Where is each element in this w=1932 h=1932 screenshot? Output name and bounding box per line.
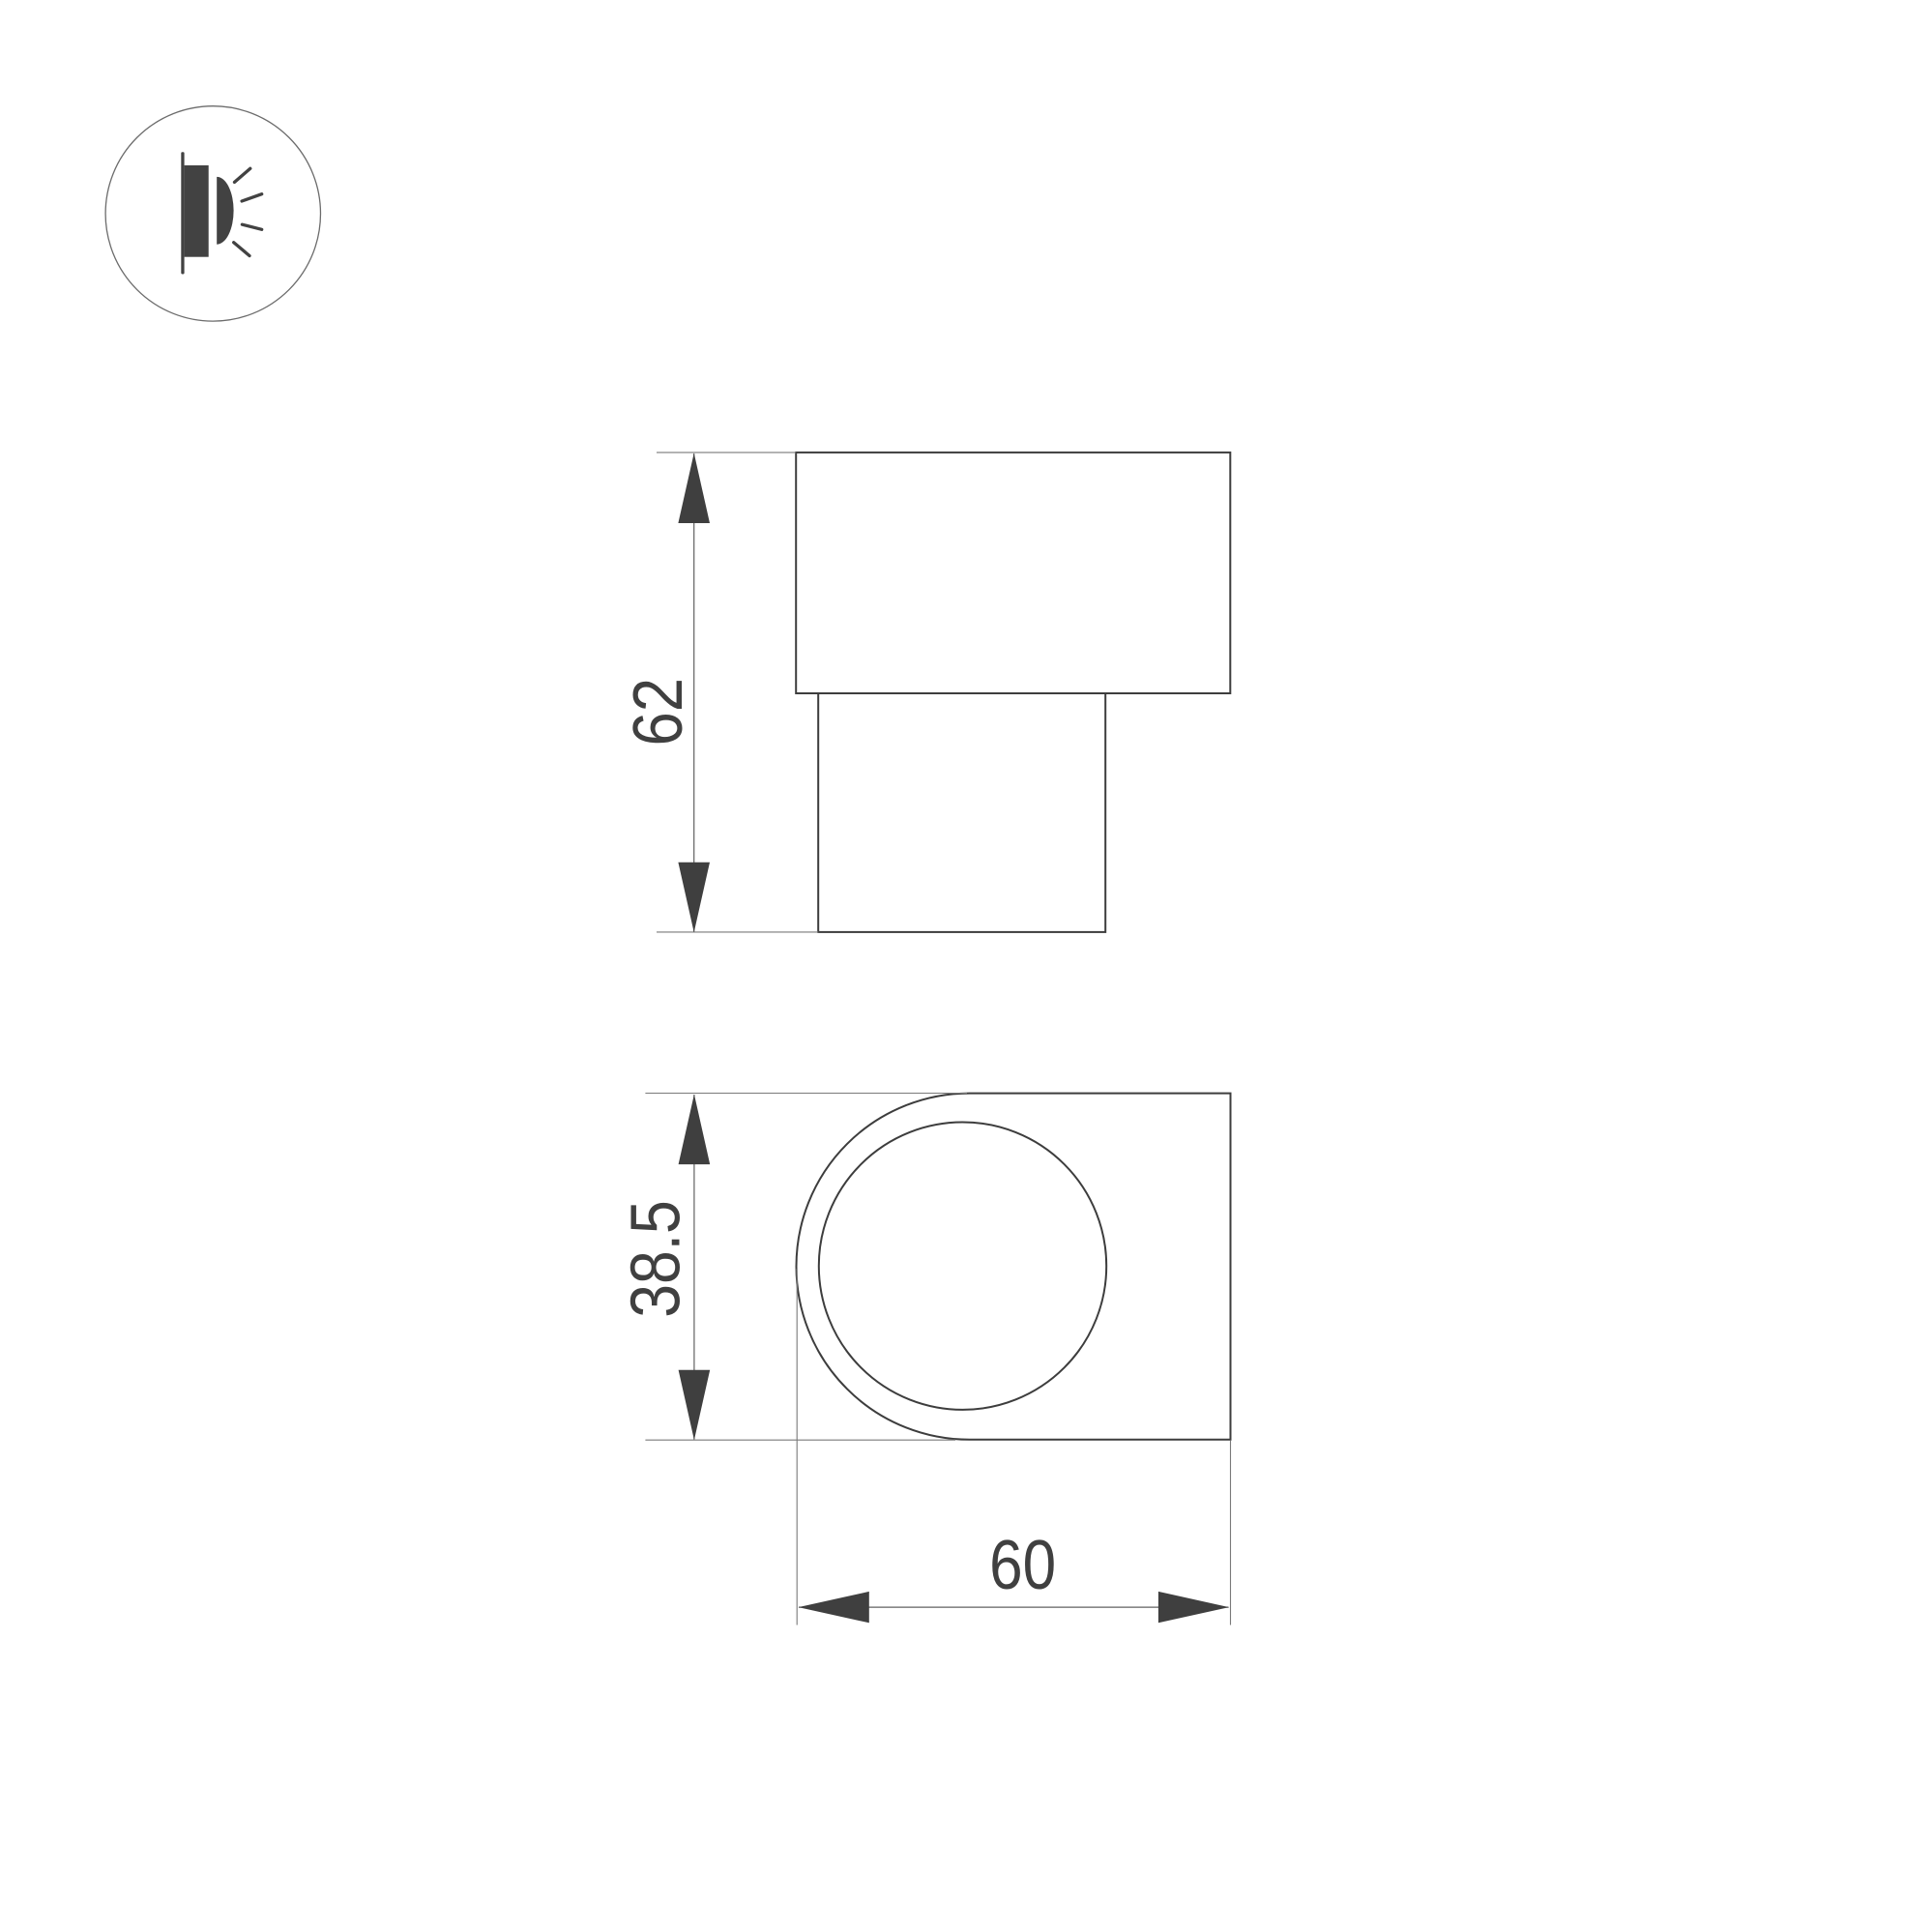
- svg-text:60: 60: [989, 1526, 1056, 1604]
- svg-text:38.5: 38.5: [617, 1200, 695, 1318]
- svg-text:62: 62: [619, 678, 697, 746]
